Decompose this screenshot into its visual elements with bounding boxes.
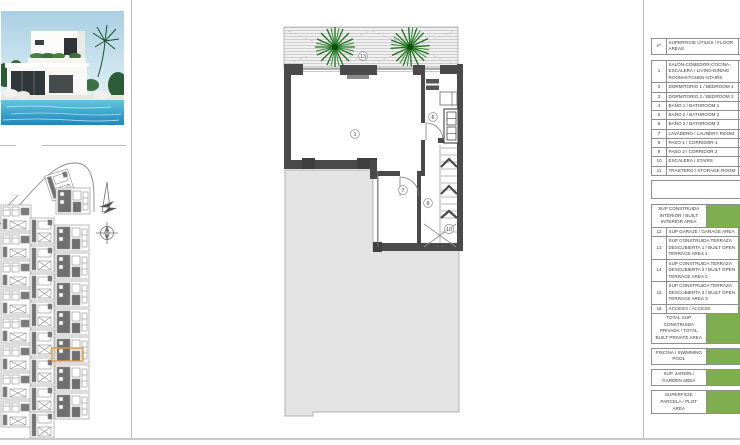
compass-icon	[96, 222, 118, 244]
villa-render-photo	[1, 11, 124, 125]
table-row: 9PASO 2 / CORRIDOR 2	[652, 147, 740, 156]
lower-roof-mass	[285, 170, 459, 416]
legend-header-label: SUPERFICIE ÚTILES / FLOOR AREAS	[667, 39, 738, 54]
label-corridor-2: 9	[427, 201, 430, 207]
table-row: 1SALÓN-COMEDOR-COCINA-ESCALERA / LIVING-…	[652, 61, 740, 83]
terrace-deck	[284, 27, 458, 68]
photo-divider-a	[0, 145, 16, 146]
table-row: 2DORMITORIO 1 / BEDROOM 1	[652, 82, 740, 91]
label-bathroom-3: 6	[432, 115, 435, 121]
north-arrow-icon	[99, 182, 117, 214]
table-row: 10ESCALERA / STAIRS	[652, 156, 740, 165]
legend-table: nº SUPERFICIE ÚTILES / FLOOR AREAS 1SALÓ…	[651, 38, 740, 414]
table-row: 15SUP CONSTRUIDA TERRAZA DESCUBIERTA 3 /…	[652, 281, 740, 304]
site-plan	[0, 152, 130, 438]
label-stairs: 10	[446, 227, 452, 233]
photo-divider-b	[42, 145, 126, 146]
floor-plan: 13 1 6 7 9 10	[280, 22, 466, 420]
table-row: 6BAÑO 3 / BATHROOM 3	[652, 119, 740, 128]
label-laundry: 7	[402, 188, 405, 194]
legend-header-num: nº	[652, 39, 667, 54]
sheet-divider-right	[643, 0, 644, 440]
sheet-bottom-border	[0, 438, 740, 440]
sheet-divider-left	[131, 0, 132, 440]
table-row: 14SUP CONSTRUIDA TERRAZA DESCUBIERTA 2 /…	[652, 259, 740, 282]
total-row: TOTAL SUP CONSTRUIDA PRIVADA / TOTAL BUI…	[652, 313, 740, 343]
rooms-table: 1SALÓN-COMEDOR-COCINA-ESCALERA / LIVING-…	[651, 60, 740, 176]
garden-row: SUP. JARDÍN / GARDEN AREA	[651, 369, 740, 386]
label-living-room: 1	[354, 132, 357, 138]
table-row: 12SUP GARAJE / GARAGE AREA	[652, 227, 740, 236]
table-row: 16ACCESO / ACCESS	[652, 304, 740, 313]
built-section-header: SUP CONSTRUIDA INTERIOR / BUILT INTERIOR…	[652, 205, 740, 227]
legend-spacer	[651, 180, 740, 199]
table-row: 3DORMITORIO 2 / BEDROOM 2	[652, 92, 740, 101]
pool-row: PISCINA / SWIMMING POOL	[651, 348, 740, 365]
legend-header: nº SUPERFICIE ÚTILES / FLOOR AREAS	[651, 38, 740, 55]
plan-sheet: 13 1 6 7 9 10 nº SUPERFICIE ÚTILES / FLO…	[0, 0, 740, 445]
table-row: 5BAÑO 2 / BATHROOM 2	[652, 110, 740, 119]
table-row: 11TRASTERO / STORAGE ROOM	[652, 166, 740, 175]
table-row: 13SUP CONSTRUIDA TERRAZA DESCUBIERTA 1 /…	[652, 236, 740, 259]
table-row: 7LAVADERO / LAUNDRY ROOM	[652, 129, 740, 138]
table-row: 4BAÑO 1 / BATHROOM 1	[652, 101, 740, 110]
table-row: 8PASO 1 / CORRIDOR 1	[652, 138, 740, 147]
plot-row: SUPERFICIE PARCELA / PLOT AREA	[651, 390, 740, 414]
label-terrace: 13	[360, 54, 366, 60]
built-area-table: SUP CONSTRUIDA INTERIOR / BUILT INTERIOR…	[651, 204, 740, 344]
